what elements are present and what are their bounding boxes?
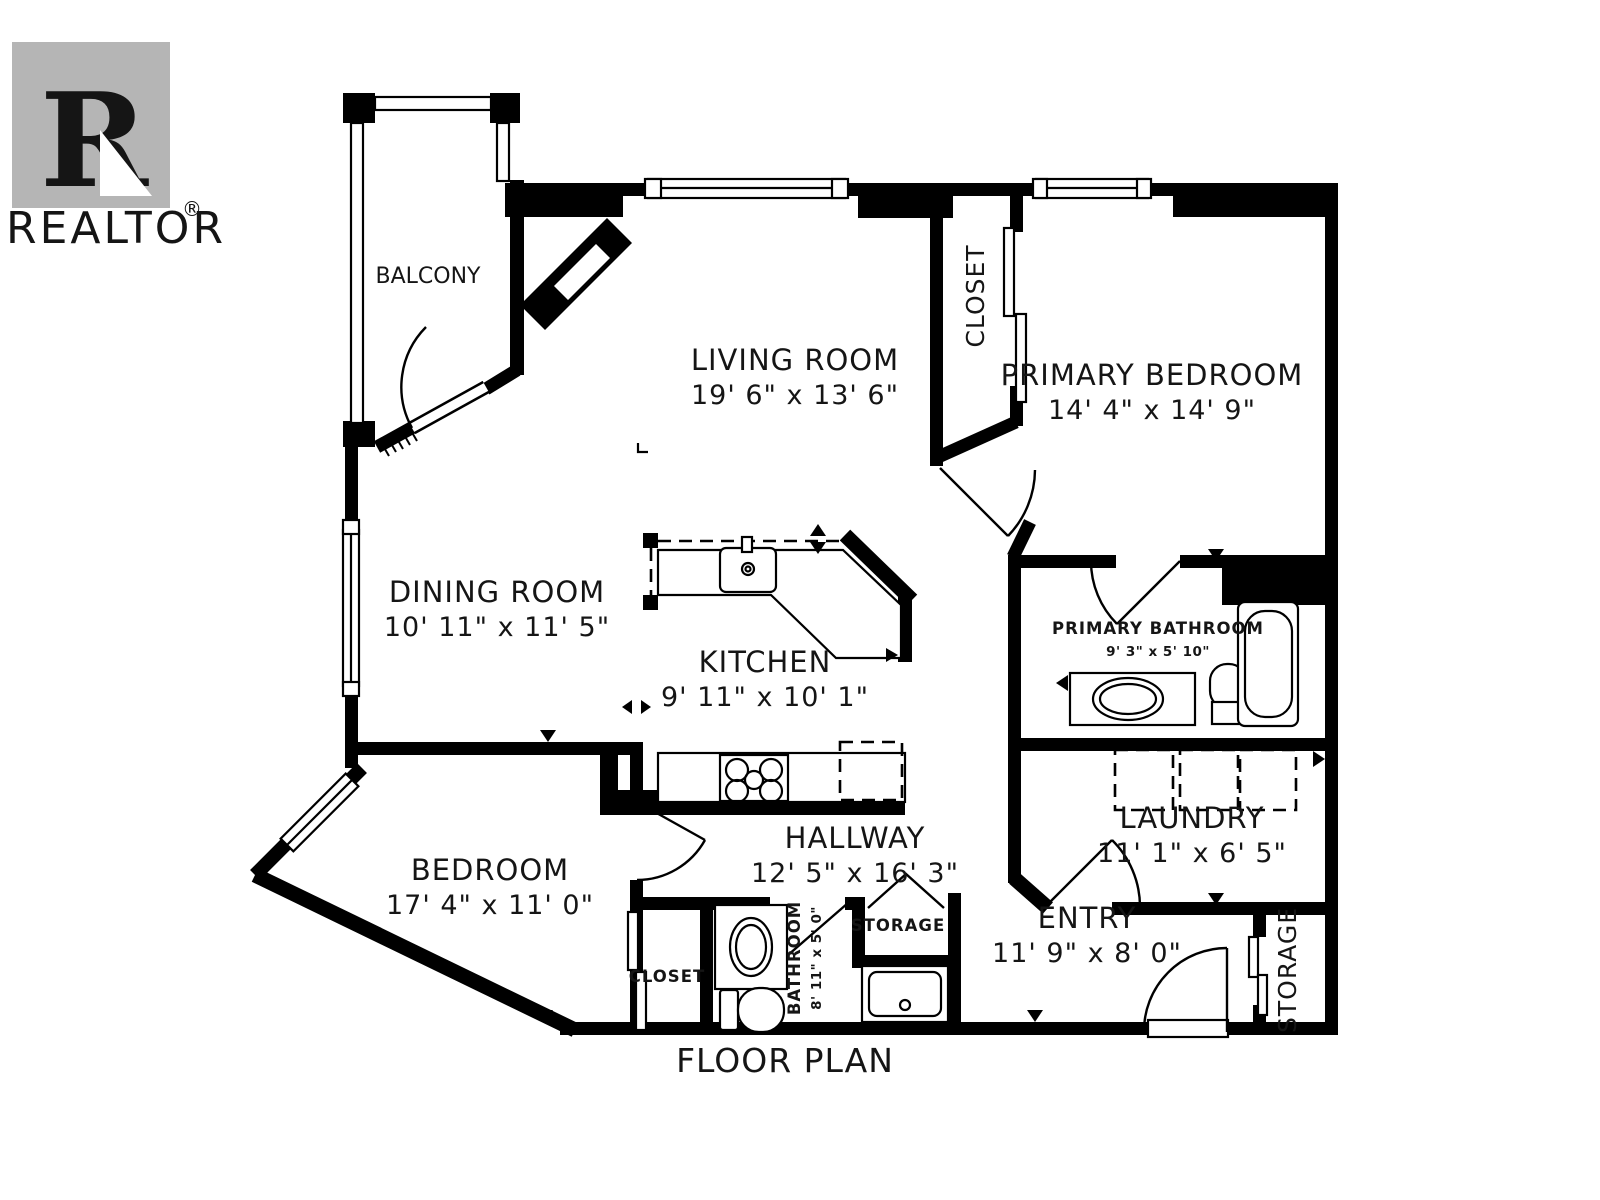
kitchen-dims: 9' 11" x 10' 1" bbox=[661, 682, 869, 713]
stove bbox=[720, 755, 788, 802]
realtor-watermark: R REALTOR ® bbox=[6, 42, 226, 254]
laundry-label: LAUNDRY bbox=[1120, 801, 1265, 835]
hallway-dims: 12' 5" x 16' 3" bbox=[751, 858, 959, 889]
shower bbox=[862, 966, 948, 1022]
primary-bedroom-door bbox=[940, 468, 1035, 536]
balcony-label: BALCONY bbox=[376, 264, 482, 289]
kitchen-island-counter bbox=[658, 550, 901, 658]
bathroom-dims: 8' 11" x 5' 0" bbox=[809, 906, 825, 1010]
registered-mark: ® bbox=[182, 197, 202, 221]
kitchen-sink bbox=[720, 537, 776, 592]
living-room-label: LIVING ROOM bbox=[691, 343, 899, 377]
living-room-dims: 19' 6" x 13' 6" bbox=[691, 380, 899, 411]
floor-marking bbox=[638, 443, 648, 452]
entry-label: ENTRY bbox=[1038, 901, 1137, 935]
primary-bathroom-door bbox=[1091, 561, 1180, 624]
primary-bedroom-window bbox=[1033, 179, 1151, 198]
entry-dims: 11' 9" x 8' 0" bbox=[992, 938, 1182, 969]
dining-room-dims: 10' 11" x 11' 5" bbox=[384, 612, 610, 643]
primary-bedroom-dims: 14' 4" x 14' 9" bbox=[1048, 395, 1256, 426]
dining-room-label: DINING ROOM bbox=[389, 575, 605, 609]
floor-plan-canvas: R REALTOR ® bbox=[0, 0, 1600, 1200]
primary-bedroom-label: PRIMARY BEDROOM bbox=[1001, 358, 1304, 392]
laundry-dims: 11' 1" x 6' 5" bbox=[1097, 838, 1287, 869]
plan-title: FLOOR PLAN bbox=[676, 1041, 894, 1080]
bedroom-bay-window bbox=[281, 774, 359, 852]
balcony-railing bbox=[351, 97, 509, 423]
primary-bathroom-label: PRIMARY BATHROOM bbox=[1052, 619, 1264, 638]
bedroom-dims: 17' 4" x 11' 0" bbox=[386, 890, 594, 921]
storage-entry-label: STORAGE bbox=[1273, 907, 1302, 1033]
dimension-ticks bbox=[537, 443, 1325, 1022]
bathroom-label: BATHROOM bbox=[785, 901, 804, 1015]
toilet bbox=[720, 988, 784, 1032]
primary-vanity bbox=[1070, 673, 1195, 725]
closet-bedroom-label: CLOSET bbox=[629, 967, 705, 986]
closet-top-label: CLOSET bbox=[961, 244, 990, 347]
primary-bathroom-dims: 9' 3" x 5' 10" bbox=[1106, 644, 1210, 660]
storage-entry-sliding-door bbox=[1249, 937, 1267, 1015]
dining-room-window bbox=[343, 520, 359, 696]
bedroom-label: BEDROOM bbox=[411, 853, 569, 887]
storage-hall-label: STORAGE bbox=[851, 916, 945, 935]
kitchen-label: KITCHEN bbox=[699, 645, 832, 679]
living-room-window bbox=[645, 179, 848, 198]
hallway-label: HALLWAY bbox=[785, 821, 926, 855]
fireplace bbox=[520, 218, 632, 330]
